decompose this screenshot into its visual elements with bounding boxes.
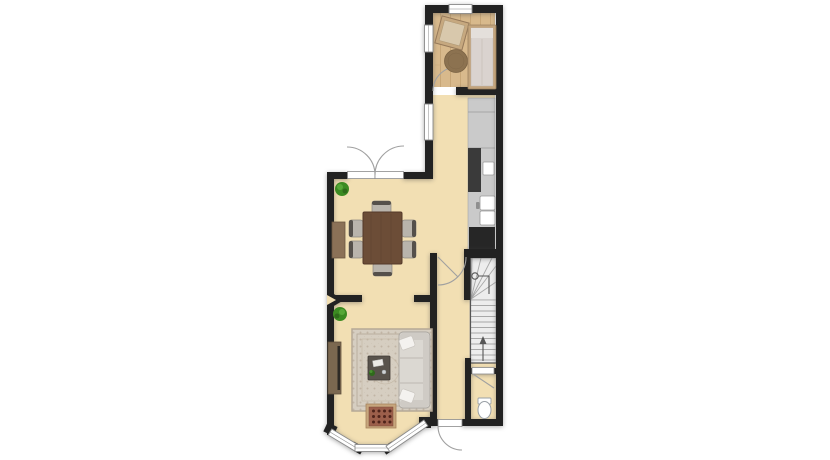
tv-console bbox=[328, 342, 341, 394]
dining-chair bbox=[349, 241, 363, 258]
sink-faucet bbox=[476, 202, 480, 209]
tv bbox=[338, 346, 341, 390]
french-door-left-leaf bbox=[348, 172, 376, 179]
mug bbox=[382, 370, 386, 374]
floorplan-drawing bbox=[0, 0, 830, 460]
coffee-table bbox=[368, 356, 390, 380]
double-bed bbox=[468, 25, 496, 89]
wc-door-leaf bbox=[472, 368, 494, 375]
sink-bowl-bottom bbox=[480, 211, 495, 225]
kitchen-counter bbox=[468, 98, 495, 250]
right-exterior-wall bbox=[496, 5, 503, 426]
fridge-unit bbox=[469, 227, 495, 250]
potted-plant-dining bbox=[335, 182, 349, 196]
floorplan-page bbox=[0, 0, 830, 460]
bed-pillow bbox=[471, 28, 493, 38]
french-door-right-leaf bbox=[375, 172, 404, 179]
sideboard bbox=[332, 222, 345, 258]
toilet bbox=[478, 402, 491, 419]
potted-plant-living bbox=[333, 307, 347, 321]
dining-table bbox=[363, 212, 402, 264]
dining-chair bbox=[373, 263, 392, 276]
front-door-arc bbox=[438, 426, 462, 450]
french-door-left-arc bbox=[347, 147, 375, 175]
tall-dark-appliance bbox=[468, 148, 481, 192]
wc-fixtures bbox=[478, 398, 491, 419]
dining-chair bbox=[402, 241, 416, 258]
dining-chair bbox=[349, 220, 363, 237]
french-door-right-arc bbox=[375, 146, 404, 175]
small-appliance bbox=[483, 162, 494, 175]
dining-chair bbox=[402, 220, 416, 237]
sofa bbox=[399, 332, 430, 408]
front-door-leaf bbox=[438, 420, 462, 427]
fireplace-hearth bbox=[366, 404, 396, 428]
sink-bowl-top bbox=[480, 196, 495, 210]
